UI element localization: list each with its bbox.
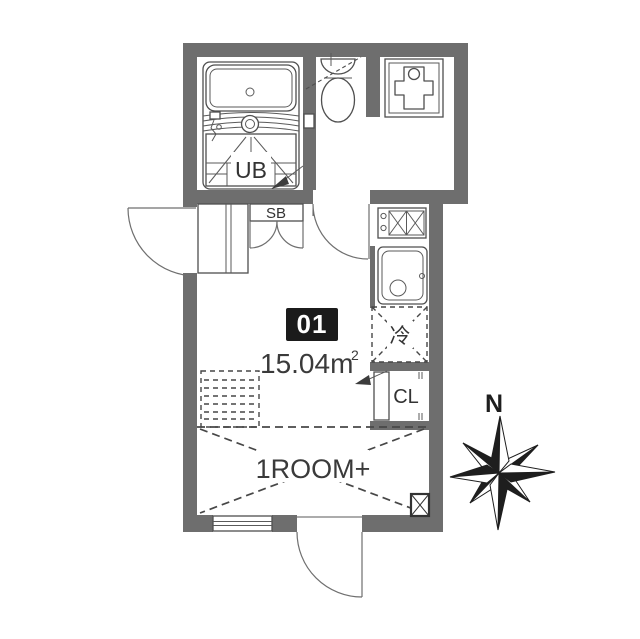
toilet-bowl-icon xyxy=(322,78,355,122)
closet-label: CL xyxy=(393,386,419,408)
shower-knob-icon xyxy=(242,116,259,133)
compass-north-label: N xyxy=(485,390,503,418)
wall-bottom-b xyxy=(272,515,297,532)
paper-holder-icon xyxy=(304,114,314,128)
shoe-box-label: SB xyxy=(266,205,286,222)
unit-bath-label: UB xyxy=(235,157,267,183)
wall-right-main xyxy=(429,204,443,532)
wall-sink-edge xyxy=(370,246,375,308)
room-type-label: 1ROOM+ xyxy=(256,454,371,484)
unit-number: 01 xyxy=(297,309,328,339)
wall-left-upper xyxy=(183,57,197,207)
wall-left-lower xyxy=(183,273,197,532)
south-window xyxy=(213,516,272,531)
wall-fridge-closet xyxy=(370,362,429,371)
wall-closet-bottom xyxy=(370,421,429,430)
wall-under-bath xyxy=(183,190,313,204)
wall-top xyxy=(183,43,468,57)
wall-toilet-laundry-stub xyxy=(366,57,380,117)
wall-kitchen-top xyxy=(370,190,468,204)
wall-right-upper xyxy=(454,57,468,204)
unit-area-exponent: 2 xyxy=(351,347,359,363)
entrance-storage xyxy=(198,204,248,273)
floor-plan-page: UB SB xyxy=(0,0,640,639)
refrigerator-label: 冷 xyxy=(390,325,411,348)
pan-drain-icon xyxy=(409,69,420,80)
wall-bottom-a xyxy=(183,515,213,532)
window-frame xyxy=(213,516,272,531)
floor-plan-drawing: UB SB xyxy=(0,0,640,639)
unit-area: 15.04m xyxy=(260,348,353,379)
pipe-space xyxy=(411,494,429,516)
closet-door-leaf xyxy=(374,372,389,420)
faucet-icon xyxy=(210,112,220,119)
wall-bottom-c xyxy=(362,515,443,532)
